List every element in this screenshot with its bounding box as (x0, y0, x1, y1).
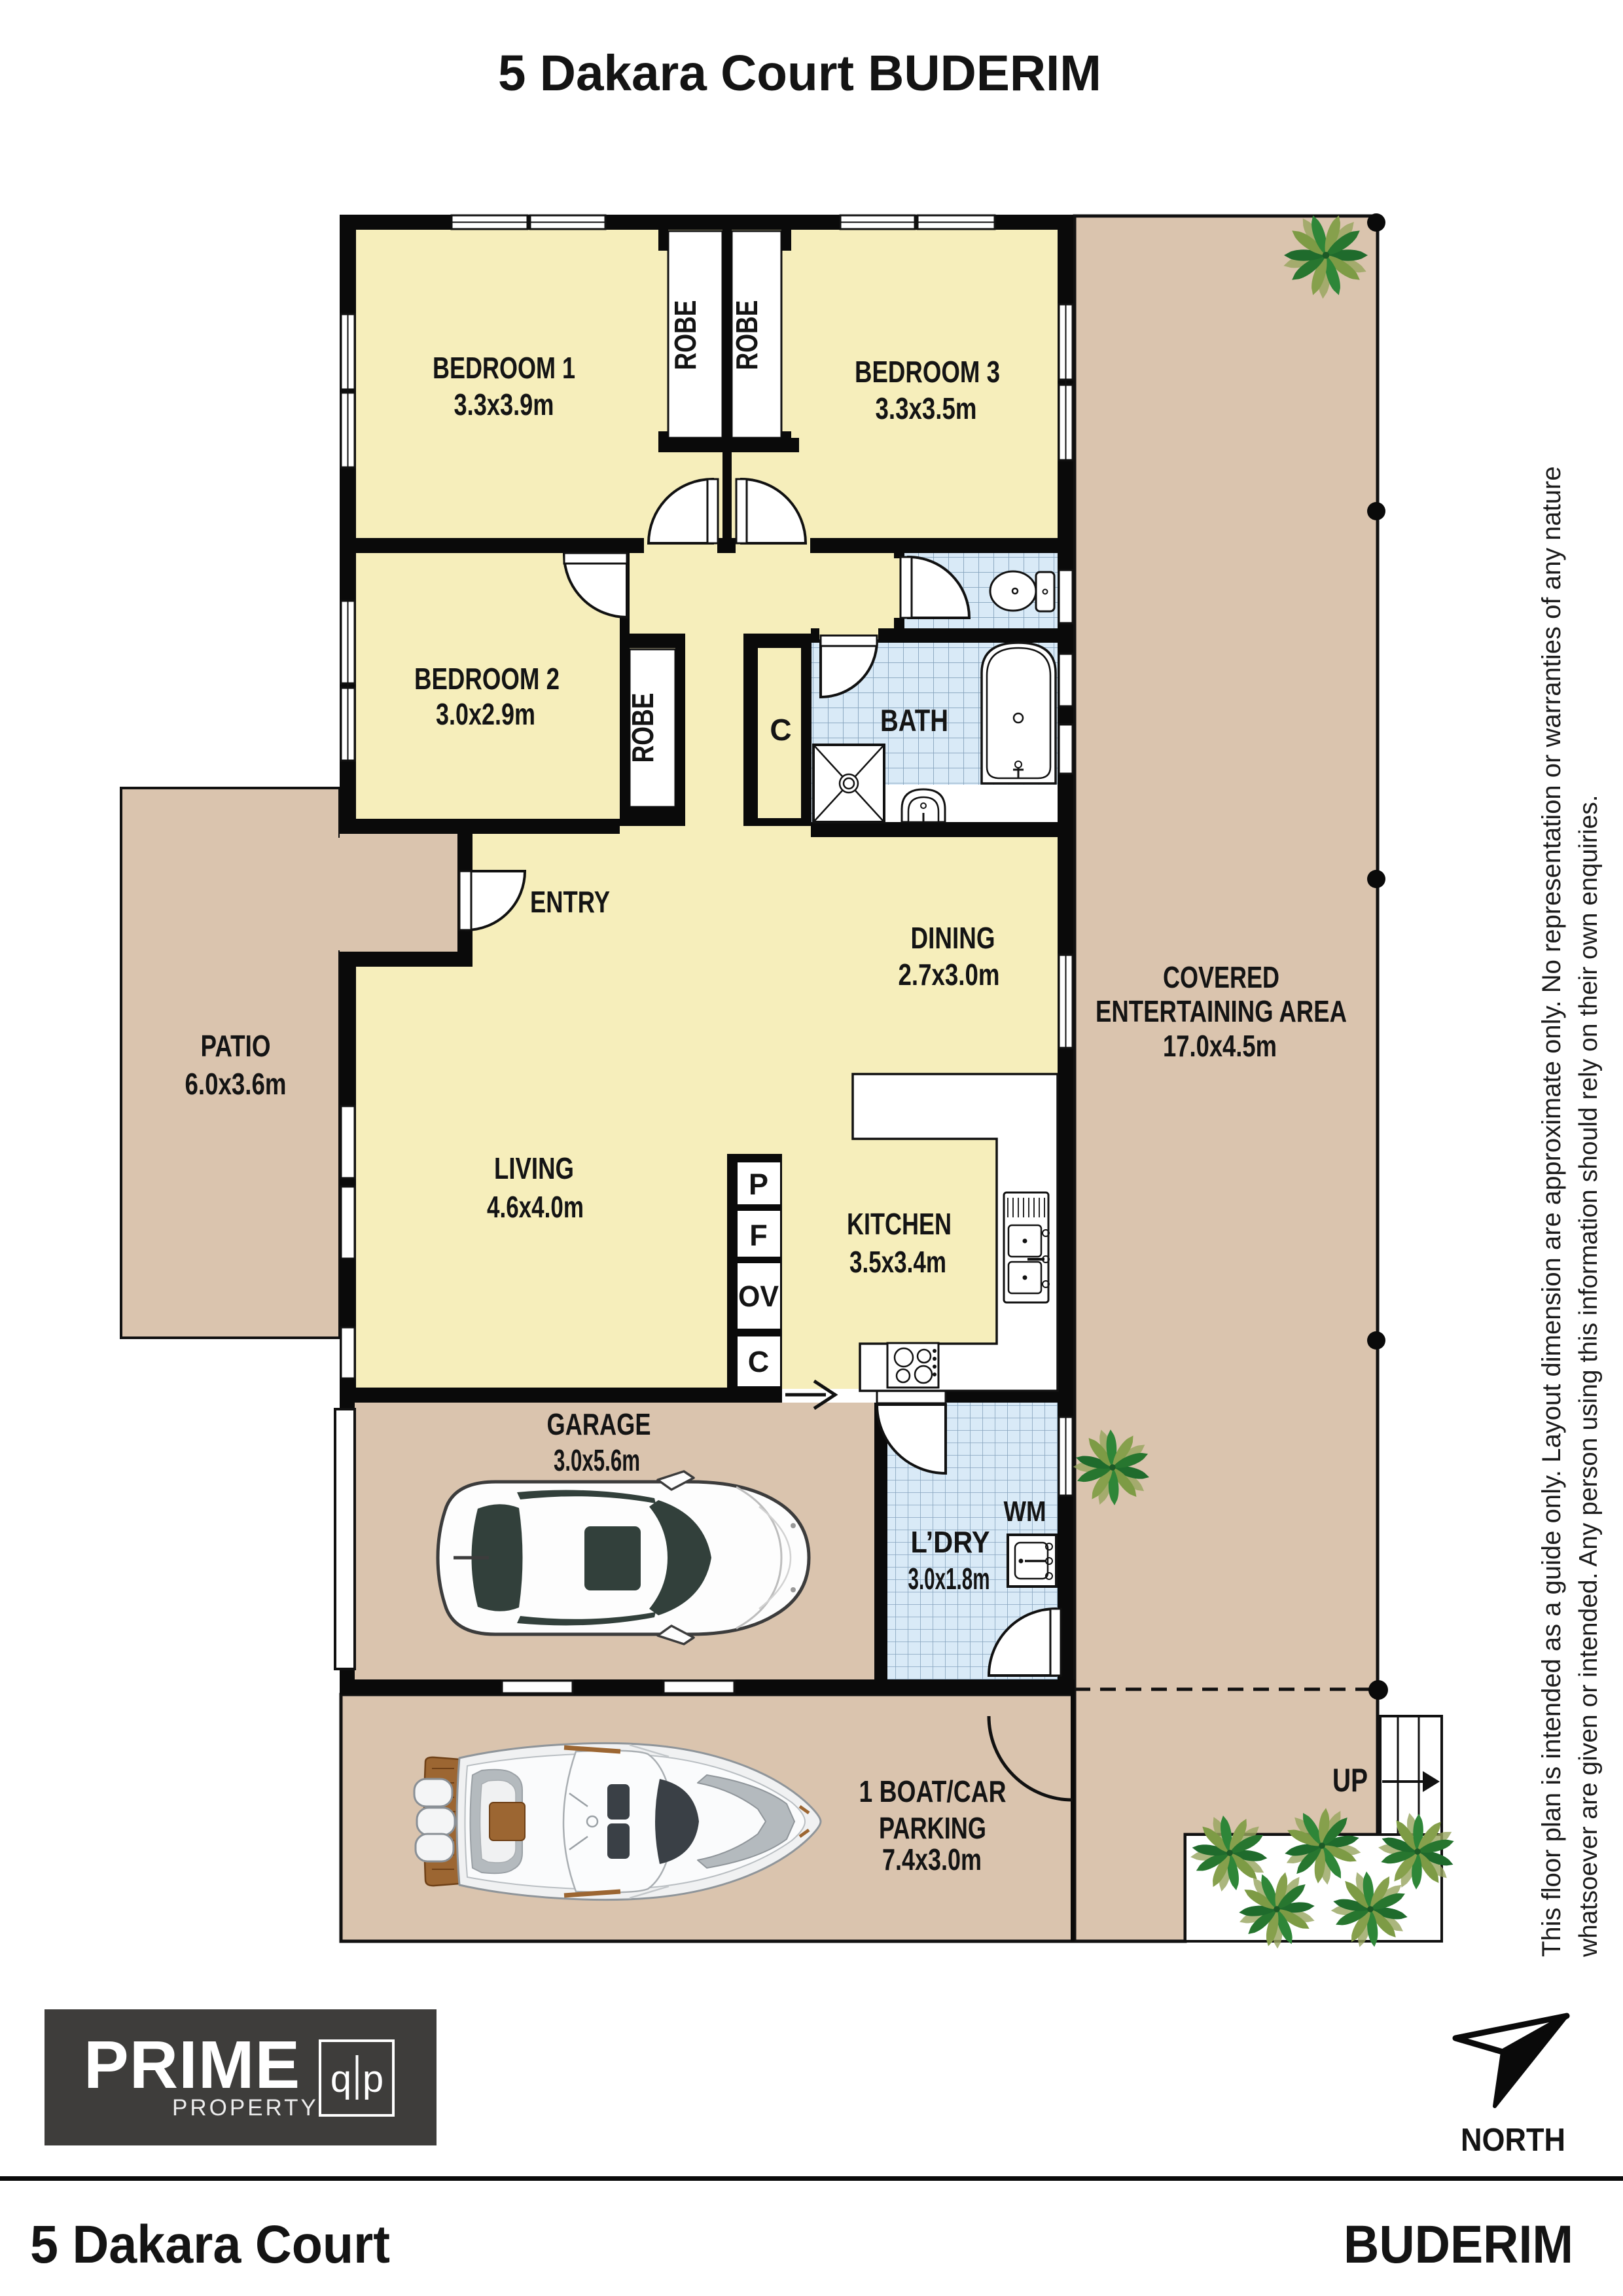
svg-text:NORTH: NORTH (1461, 2123, 1565, 2158)
svg-text:KITCHEN: KITCHEN (847, 1207, 952, 1241)
svg-text:1 BOAT/CAR: 1 BOAT/CAR (859, 1774, 1007, 1808)
svg-text:7.4x3.0m: 7.4x3.0m (882, 1842, 982, 1876)
svg-text:3.3x3.5m: 3.3x3.5m (876, 391, 977, 425)
svg-text:GARAGE: GARAGE (547, 1407, 651, 1441)
svg-text:F: F (749, 1219, 768, 1252)
svg-text:L’DRY: L’DRY (911, 1525, 990, 1559)
svg-text:PATIO: PATIO (201, 1029, 271, 1063)
svg-text:LIVING: LIVING (494, 1151, 574, 1185)
svg-text:ENTERTAINING AREA: ENTERTAINING AREA (1096, 994, 1347, 1028)
svg-text:ENTRY: ENTRY (530, 885, 610, 919)
svg-text:ROBE: ROBE (730, 300, 764, 370)
svg-text:C: C (748, 1345, 770, 1378)
svg-text:This floor plan is intended as: This floor plan is intended as a guide o… (1537, 466, 1566, 1957)
svg-text:BEDROOM 1: BEDROOM 1 (433, 351, 575, 385)
svg-text:q: q (330, 2058, 351, 2100)
svg-text:p: p (363, 2058, 383, 2100)
svg-text:whatsoever are given or intend: whatsoever are given or intended. Any pe… (1575, 795, 1603, 1958)
svg-text:17.0x4.5m: 17.0x4.5m (1163, 1029, 1277, 1063)
svg-text:4.6x4.0m: 4.6x4.0m (487, 1190, 584, 1224)
svg-text:PRIME: PRIME (84, 2027, 300, 2102)
svg-text:WM: WM (1004, 1496, 1046, 1528)
svg-text:OV: OV (738, 1280, 779, 1313)
svg-text:COVERED: COVERED (1163, 960, 1279, 994)
svg-text:ROBE: ROBE (626, 693, 660, 763)
svg-text:5 Dakara Court BUDERIM: 5 Dakara Court BUDERIM (498, 45, 1101, 101)
svg-text:PARKING: PARKING (879, 1811, 986, 1845)
svg-text:3.3x3.9m: 3.3x3.9m (454, 387, 554, 422)
svg-text:6.0x3.6m: 6.0x3.6m (185, 1067, 287, 1101)
svg-text:5 Dakara Court: 5 Dakara Court (30, 2215, 390, 2274)
svg-text:ROBE: ROBE (668, 300, 702, 370)
svg-text:BUDERIM: BUDERIM (1344, 2215, 1573, 2274)
svg-text:3.0x1.8m: 3.0x1.8m (908, 1562, 990, 1596)
svg-text:PROPERTY: PROPERTY (172, 2095, 319, 2121)
svg-text:2.7x3.0m: 2.7x3.0m (899, 958, 1000, 992)
svg-text:DINING: DINING (911, 921, 995, 955)
svg-text:3.0x5.6m: 3.0x5.6m (554, 1443, 640, 1477)
svg-text:BEDROOM 2: BEDROOM 2 (414, 662, 560, 696)
svg-text:BATH: BATH (880, 703, 948, 738)
svg-text:UP: UP (1332, 1762, 1368, 1799)
svg-text:3.5x3.4m: 3.5x3.4m (849, 1245, 946, 1279)
svg-text:BEDROOM 3: BEDROOM 3 (855, 355, 1000, 389)
svg-text:3.0x2.9m: 3.0x2.9m (436, 697, 535, 731)
svg-text:P: P (749, 1168, 768, 1201)
svg-text:C: C (770, 713, 791, 747)
